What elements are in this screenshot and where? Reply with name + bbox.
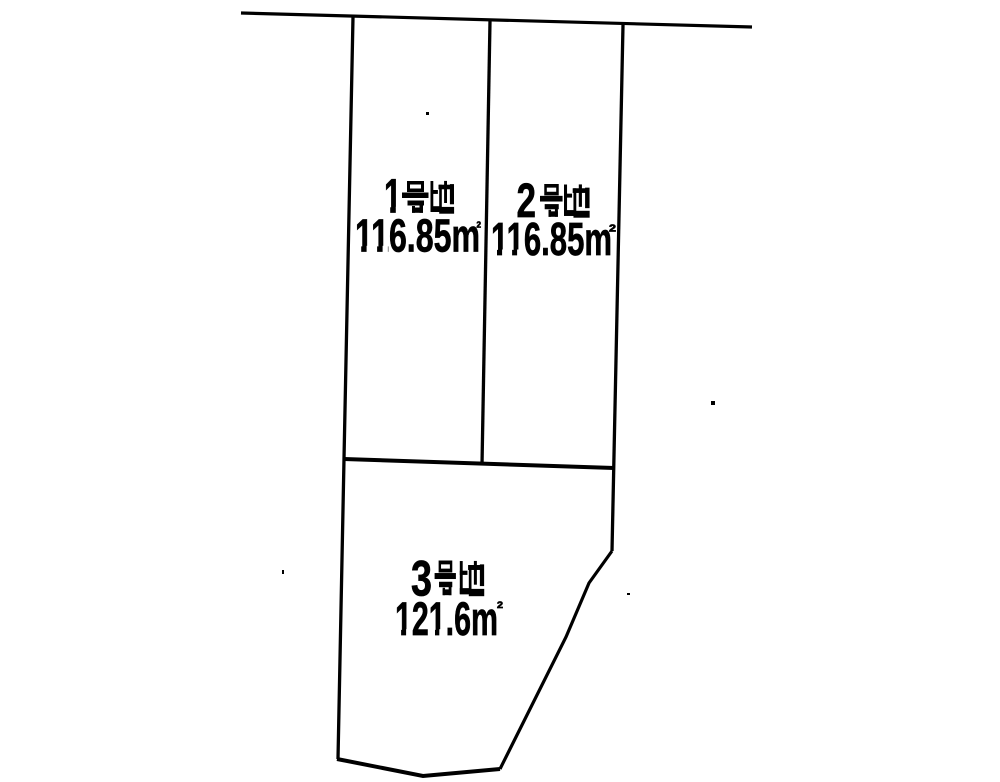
svg-text:116.85m: 116.85m [355,210,480,262]
svg-text:2: 2 [609,224,617,235]
svg-text:2: 2 [497,600,503,610]
svg-text:116.85m: 116.85m [491,213,612,265]
svg-text:2: 2 [477,221,482,230]
svg-text:121.6m: 121.6m [395,593,498,646]
